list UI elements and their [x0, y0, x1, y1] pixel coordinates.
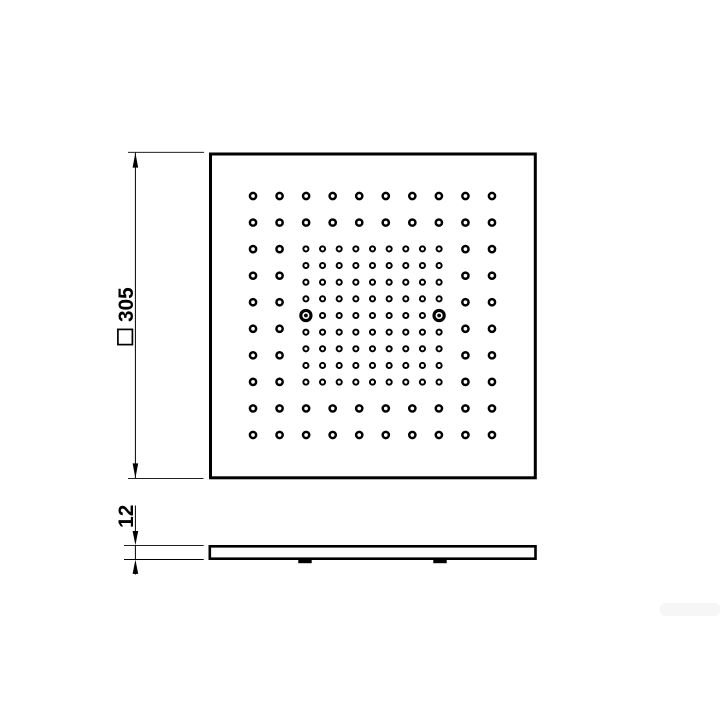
svg-text:12: 12 — [115, 505, 138, 528]
svg-text:305: 305 — [115, 287, 138, 322]
